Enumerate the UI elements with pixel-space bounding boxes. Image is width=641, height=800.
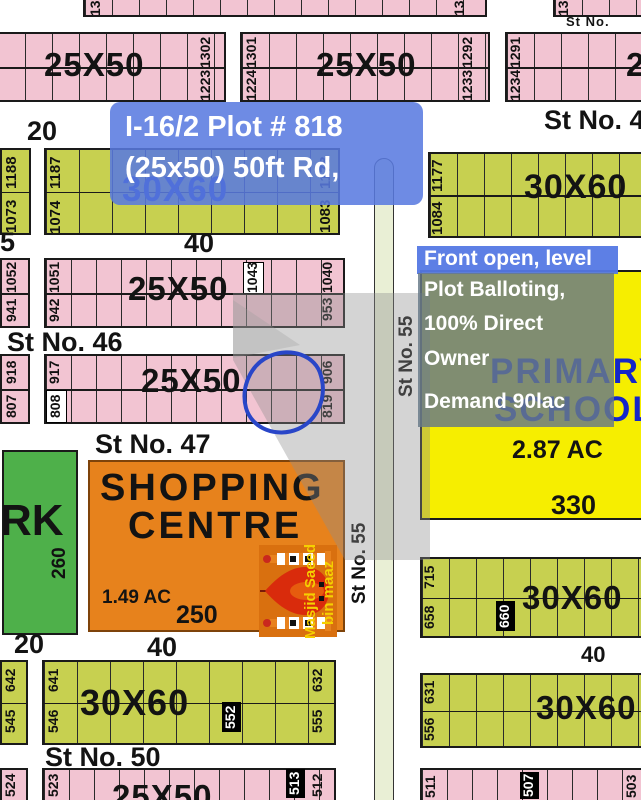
plot-number: 1291 [507, 36, 524, 68]
plot-number: 1188 [3, 151, 20, 195]
size-label: 30X60 [522, 581, 622, 616]
plot-number: 632 [309, 663, 326, 698]
shopping-centre-title-2: CENTRE [128, 507, 302, 547]
school-area: 2.87 AC [512, 437, 603, 463]
plot-number-highlighted: 808 [46, 390, 67, 423]
plot-number: 1302 [197, 36, 214, 68]
plot-number: 1223 [197, 69, 214, 101]
block-strip-top-left [83, 0, 487, 17]
plot-number: 807 [3, 391, 20, 421]
plot-number-highlighted: 1043 [243, 262, 264, 294]
plot-number: 917 [46, 357, 63, 388]
plot-number: 556 [421, 712, 438, 746]
road-width-label: 20 [27, 117, 57, 145]
plot-number: 1051 [46, 261, 63, 294]
plot-number: 13 [451, 0, 468, 16]
plot-number: 1040 [319, 261, 336, 294]
plot-number: 942 [46, 296, 63, 325]
listing-title-overlay: I-16/2 Plot # 818 (25x50) 50ft Rd, [110, 102, 423, 205]
size-label: 25X50 [44, 48, 144, 83]
park-number: 260 [48, 536, 72, 590]
plot-number: 631 [421, 676, 438, 708]
plot-number: 918 [3, 357, 20, 388]
block-row1-c [505, 32, 641, 102]
size-label: 25X50 [141, 364, 241, 399]
road-width-label: 5 [0, 228, 15, 256]
plot-number: 953 [319, 294, 336, 325]
plot-number-sold: 507 [520, 772, 539, 799]
school-number: 330 [551, 491, 596, 519]
road-st-55 [374, 158, 394, 800]
note-line-2: Plot Balloting, [424, 278, 565, 302]
plot-number: 524 [2, 771, 19, 799]
mosque-name-2: bin maaz [320, 556, 338, 630]
plot-number: 511 [422, 774, 439, 799]
note-header-text: Front open, level [424, 247, 592, 271]
plot-number: 1224 [243, 69, 260, 101]
street-label-55-upper: St No. 55 [396, 298, 418, 414]
note-demand: Demand 90lac [424, 390, 565, 414]
plot-number: 641 [45, 663, 62, 698]
plot-number: 523 [45, 771, 62, 799]
plot-number-sold: 660 [496, 601, 515, 631]
note-line-4: Owner [424, 347, 489, 371]
plot-number: 715 [421, 560, 438, 594]
plot-number: 941 [3, 296, 20, 325]
plot-number: 503 [623, 774, 640, 799]
shopping-centre-area: 1.49 AC [102, 588, 171, 608]
plot-number: 1233 [459, 69, 476, 101]
plot-number: 658 [421, 600, 438, 635]
plot-number: 1187 [47, 151, 64, 195]
road-width-label: 40 [581, 643, 605, 666]
size-label: 25X50 [316, 48, 416, 83]
mosque-name-1: Masjid Saeed [302, 545, 320, 639]
plot-number-sold: 513 [286, 769, 305, 798]
plot-number: 546 [45, 703, 62, 740]
size-label: 30X60 [524, 170, 627, 206]
road-width-label: 20 [14, 630, 44, 658]
listing-title-line2: (25x50) 50ft Rd, [125, 148, 423, 189]
note-line-3: 100% Direct [424, 312, 543, 336]
size-label: 25X50 [112, 780, 212, 800]
plot-number: 545 [2, 703, 19, 740]
street-label-top-small: St No. [566, 15, 610, 29]
size-label: 25X50 [626, 48, 641, 83]
street-label-top-right: St No. 4 [544, 106, 641, 134]
shopping-centre-title-1: SHOPPING [100, 469, 325, 509]
listing-title-line1: I-16/2 Plot # 818 [125, 107, 423, 148]
plot-number: 1177 [429, 155, 446, 197]
plot-number: 642 [2, 663, 19, 698]
plot-number: 512 [309, 771, 326, 799]
street-label-46: St No. 46 [7, 328, 123, 356]
plot-number: 1234 [507, 69, 524, 101]
road-width-label: 40 [147, 633, 177, 661]
plot-number: 555 [309, 703, 326, 740]
plot-number-sold: 552 [222, 702, 241, 732]
plot-number: 819 [319, 391, 336, 421]
plot-number: 906 [319, 357, 336, 388]
plot-number: 1301 [243, 36, 260, 68]
plot-number: 1052 [3, 261, 20, 294]
size-label: 25X50 [128, 272, 228, 307]
plot-number: 1292 [459, 36, 476, 68]
shopping-centre-number: 250 [176, 602, 218, 628]
road-width-label: 40 [184, 229, 214, 257]
street-label-47: St No. 47 [95, 430, 211, 458]
row-divider [507, 67, 641, 69]
street-label-55-lower: St No. 55 [349, 505, 371, 621]
plot-map: 13 13 13 1302 1223 1301 1224 1292 1233 1… [0, 0, 641, 800]
plot-number: 1084 [429, 199, 446, 237]
street-label-50: St No. 50 [45, 743, 161, 771]
plot-number: 1074 [47, 199, 64, 235]
size-label: 30X60 [80, 684, 189, 722]
size-label: 30X60 [536, 691, 636, 726]
plot-number: 13 [87, 0, 104, 16]
